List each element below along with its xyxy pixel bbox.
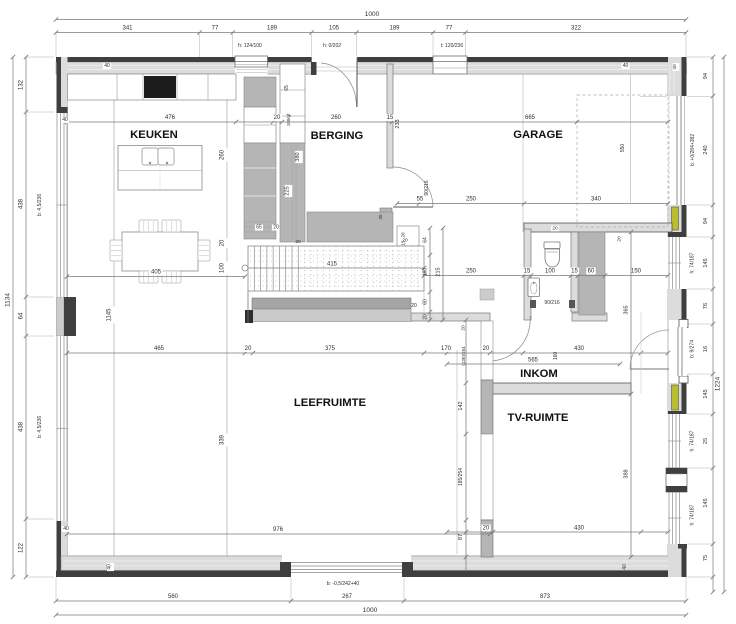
svg-text:b: +0/284+382: b: +0/284+382 bbox=[690, 134, 696, 166]
svg-text:225: 225 bbox=[285, 186, 291, 195]
svg-text:145: 145 bbox=[703, 389, 709, 398]
svg-text:25: 25 bbox=[703, 438, 709, 444]
svg-text:465: 465 bbox=[154, 346, 165, 352]
svg-text:20: 20 bbox=[483, 526, 490, 532]
svg-text:b: 9/274: b: 9/274 bbox=[690, 340, 696, 358]
svg-text:415: 415 bbox=[327, 262, 338, 268]
svg-text:b: 4,5/236: b: 4,5/236 bbox=[37, 194, 43, 216]
svg-text:1224: 1224 bbox=[715, 376, 722, 391]
svg-text:1145: 1145 bbox=[107, 308, 113, 322]
svg-text:20: 20 bbox=[411, 303, 417, 309]
svg-text:15: 15 bbox=[387, 115, 394, 121]
svg-text:15: 15 bbox=[571, 269, 578, 275]
svg-text:873: 873 bbox=[540, 594, 551, 600]
svg-text:160: 160 bbox=[553, 352, 559, 361]
svg-text:TV-RUIMTE: TV-RUIMTE bbox=[508, 412, 569, 424]
svg-text:40: 40 bbox=[622, 564, 628, 570]
svg-text:560: 560 bbox=[168, 594, 179, 600]
svg-text:BERGING: BERGING bbox=[311, 130, 364, 142]
svg-text:60: 60 bbox=[588, 269, 595, 275]
svg-text:250: 250 bbox=[466, 197, 477, 203]
svg-text:105: 105 bbox=[329, 26, 340, 32]
svg-text:77: 77 bbox=[212, 26, 219, 32]
svg-text:20: 20 bbox=[483, 346, 490, 352]
svg-text:260: 260 bbox=[331, 115, 342, 121]
svg-text:150: 150 bbox=[631, 269, 642, 275]
svg-text:40: 40 bbox=[672, 64, 678, 70]
svg-text:1134: 1134 bbox=[5, 293, 12, 307]
svg-text:LEEFRUIMTE: LEEFRUIMTE bbox=[294, 397, 367, 409]
svg-text:145: 145 bbox=[703, 258, 709, 267]
svg-text:438: 438 bbox=[19, 421, 25, 432]
svg-text:100: 100 bbox=[220, 262, 226, 273]
svg-text:INKOM: INKOM bbox=[520, 368, 558, 380]
svg-text:h: 74/187: h: 74/187 bbox=[690, 252, 696, 273]
svg-text:90/216: 90/216 bbox=[424, 180, 430, 196]
svg-text:20: 20 bbox=[617, 236, 623, 242]
svg-text:15: 15 bbox=[524, 269, 531, 275]
svg-text:20: 20 bbox=[295, 239, 301, 245]
svg-text:565: 565 bbox=[528, 358, 539, 364]
svg-text:35: 35 bbox=[378, 214, 383, 220]
svg-text:1000: 1000 bbox=[363, 607, 378, 614]
svg-text:388: 388 bbox=[624, 469, 630, 478]
svg-text:20: 20 bbox=[401, 232, 406, 238]
svg-text:64: 64 bbox=[423, 237, 429, 243]
svg-text:240: 240 bbox=[703, 145, 709, 154]
svg-text:65: 65 bbox=[256, 225, 262, 231]
svg-text:365: 365 bbox=[624, 305, 630, 314]
svg-text:40: 40 bbox=[623, 63, 629, 69]
svg-text:339: 339 bbox=[220, 434, 226, 445]
svg-text:976: 976 bbox=[273, 527, 284, 533]
svg-text:170: 170 bbox=[441, 346, 452, 352]
svg-text:550: 550 bbox=[620, 144, 626, 153]
svg-text:189: 189 bbox=[389, 26, 400, 32]
svg-text:76: 76 bbox=[703, 303, 709, 309]
svg-text:KEUKEN: KEUKEN bbox=[130, 129, 178, 141]
svg-text:260: 260 bbox=[220, 149, 226, 160]
svg-text:341: 341 bbox=[122, 26, 133, 32]
svg-text:132: 132 bbox=[19, 79, 25, 90]
svg-text:142: 142 bbox=[458, 401, 464, 410]
svg-text:185/254: 185/254 bbox=[458, 468, 464, 486]
svg-text:65: 65 bbox=[284, 85, 290, 91]
svg-text:16: 16 bbox=[703, 346, 709, 352]
svg-text:94: 94 bbox=[703, 218, 709, 224]
svg-text:215: 215 bbox=[436, 267, 442, 276]
svg-text:40: 40 bbox=[63, 526, 69, 532]
svg-text:20: 20 bbox=[552, 226, 558, 232]
svg-text:75: 75 bbox=[703, 555, 709, 561]
svg-text:476: 476 bbox=[165, 115, 176, 121]
svg-text:20: 20 bbox=[461, 325, 467, 331]
svg-text:h: 0/202: h: 0/202 bbox=[323, 43, 341, 49]
svg-text:145: 145 bbox=[703, 498, 709, 507]
svg-text:122: 122 bbox=[19, 542, 25, 553]
svg-text:322: 322 bbox=[571, 26, 582, 32]
svg-text:h: 74/187: h: 74/187 bbox=[690, 504, 696, 525]
svg-text:77: 77 bbox=[446, 26, 453, 32]
svg-text:267: 267 bbox=[342, 594, 353, 600]
svg-text:15: 15 bbox=[401, 240, 406, 246]
svg-text:40: 40 bbox=[104, 63, 110, 69]
svg-text:64: 64 bbox=[19, 312, 25, 319]
svg-text:430: 430 bbox=[574, 526, 585, 532]
svg-text:100: 100 bbox=[545, 269, 556, 275]
svg-text:160: 160 bbox=[423, 268, 429, 277]
svg-text:189: 189 bbox=[267, 26, 278, 32]
svg-text:20: 20 bbox=[220, 239, 226, 246]
svg-text:20: 20 bbox=[245, 346, 252, 352]
svg-text:100/gf: 100/gf bbox=[286, 113, 291, 126]
svg-text:87: 87 bbox=[458, 534, 464, 540]
svg-text:430: 430 bbox=[574, 346, 585, 352]
svg-text:405: 405 bbox=[151, 270, 162, 276]
svg-text:375: 375 bbox=[325, 346, 336, 352]
svg-text:h: 74/187: h: 74/187 bbox=[690, 430, 696, 451]
svg-text:b: 4,5/236: b: 4,5/236 bbox=[37, 416, 43, 438]
svg-text:GARAGE: GARAGE bbox=[513, 129, 563, 141]
svg-text:90/216: 90/216 bbox=[544, 300, 560, 306]
svg-text:380: 380 bbox=[295, 152, 301, 161]
svg-text:t: 120/236: t: 120/236 bbox=[441, 43, 463, 49]
svg-text:h: 124/100: h: 124/100 bbox=[238, 43, 262, 49]
svg-text:665: 665 bbox=[525, 115, 536, 121]
svg-text:55: 55 bbox=[417, 197, 424, 203]
svg-text:40: 40 bbox=[62, 117, 68, 123]
svg-text:b: -0,5/242+40: b: -0,5/242+40 bbox=[327, 581, 360, 587]
svg-text:340: 340 bbox=[591, 197, 602, 203]
svg-text:438: 438 bbox=[19, 198, 25, 209]
svg-text:1000: 1000 bbox=[365, 11, 380, 18]
svg-text:94: 94 bbox=[703, 73, 709, 79]
svg-text:20: 20 bbox=[274, 115, 281, 121]
svg-text:250: 250 bbox=[466, 269, 477, 275]
svg-text:20: 20 bbox=[423, 314, 429, 320]
svg-text:60: 60 bbox=[423, 299, 429, 305]
svg-text:233: 233 bbox=[395, 119, 401, 128]
svg-text:20: 20 bbox=[273, 225, 279, 231]
svg-text:40: 40 bbox=[107, 564, 113, 570]
svg-text:(130)/254: (130)/254 bbox=[461, 346, 466, 366]
